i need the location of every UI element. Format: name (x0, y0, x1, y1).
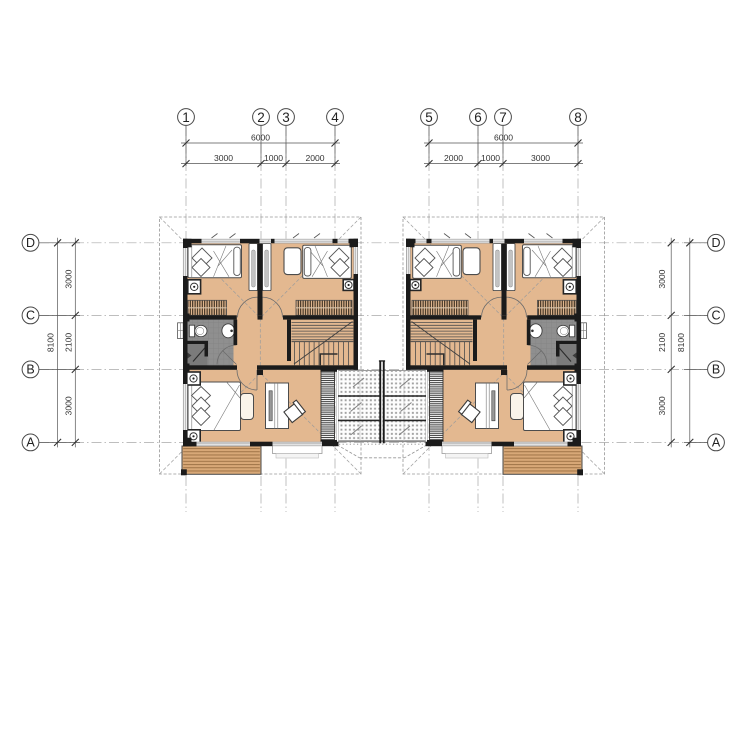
svg-text:2000: 2000 (444, 153, 463, 163)
svg-text:3: 3 (282, 110, 290, 125)
svg-text:8100: 8100 (676, 333, 686, 352)
svg-text:4: 4 (331, 110, 339, 125)
svg-text:2100: 2100 (657, 333, 667, 352)
svg-text:C: C (26, 309, 35, 323)
svg-text:D: D (711, 236, 720, 250)
svg-text:7: 7 (499, 110, 507, 125)
svg-text:2100: 2100 (63, 333, 73, 352)
svg-text:1: 1 (182, 110, 190, 125)
svg-text:3000: 3000 (657, 269, 667, 288)
svg-text:6000: 6000 (251, 132, 270, 142)
svg-text:2000: 2000 (305, 153, 324, 163)
svg-text:D: D (26, 236, 35, 250)
svg-text:8100: 8100 (46, 333, 56, 352)
svg-text:8: 8 (574, 110, 582, 125)
svg-text:3000: 3000 (214, 153, 233, 163)
svg-text:6000: 6000 (494, 132, 513, 142)
svg-text:3000: 3000 (657, 396, 667, 415)
svg-text:B: B (26, 363, 34, 377)
svg-text:3000: 3000 (531, 153, 550, 163)
svg-text:5: 5 (425, 110, 433, 125)
svg-text:C: C (711, 309, 720, 323)
svg-text:1000: 1000 (264, 153, 283, 163)
svg-text:A: A (712, 436, 721, 450)
svg-text:6: 6 (474, 110, 482, 125)
svg-text:3000: 3000 (63, 269, 73, 288)
svg-text:A: A (26, 436, 35, 450)
svg-text:2: 2 (257, 110, 265, 125)
svg-text:1000: 1000 (481, 153, 500, 163)
svg-text:3000: 3000 (63, 396, 73, 415)
svg-text:B: B (712, 363, 720, 377)
